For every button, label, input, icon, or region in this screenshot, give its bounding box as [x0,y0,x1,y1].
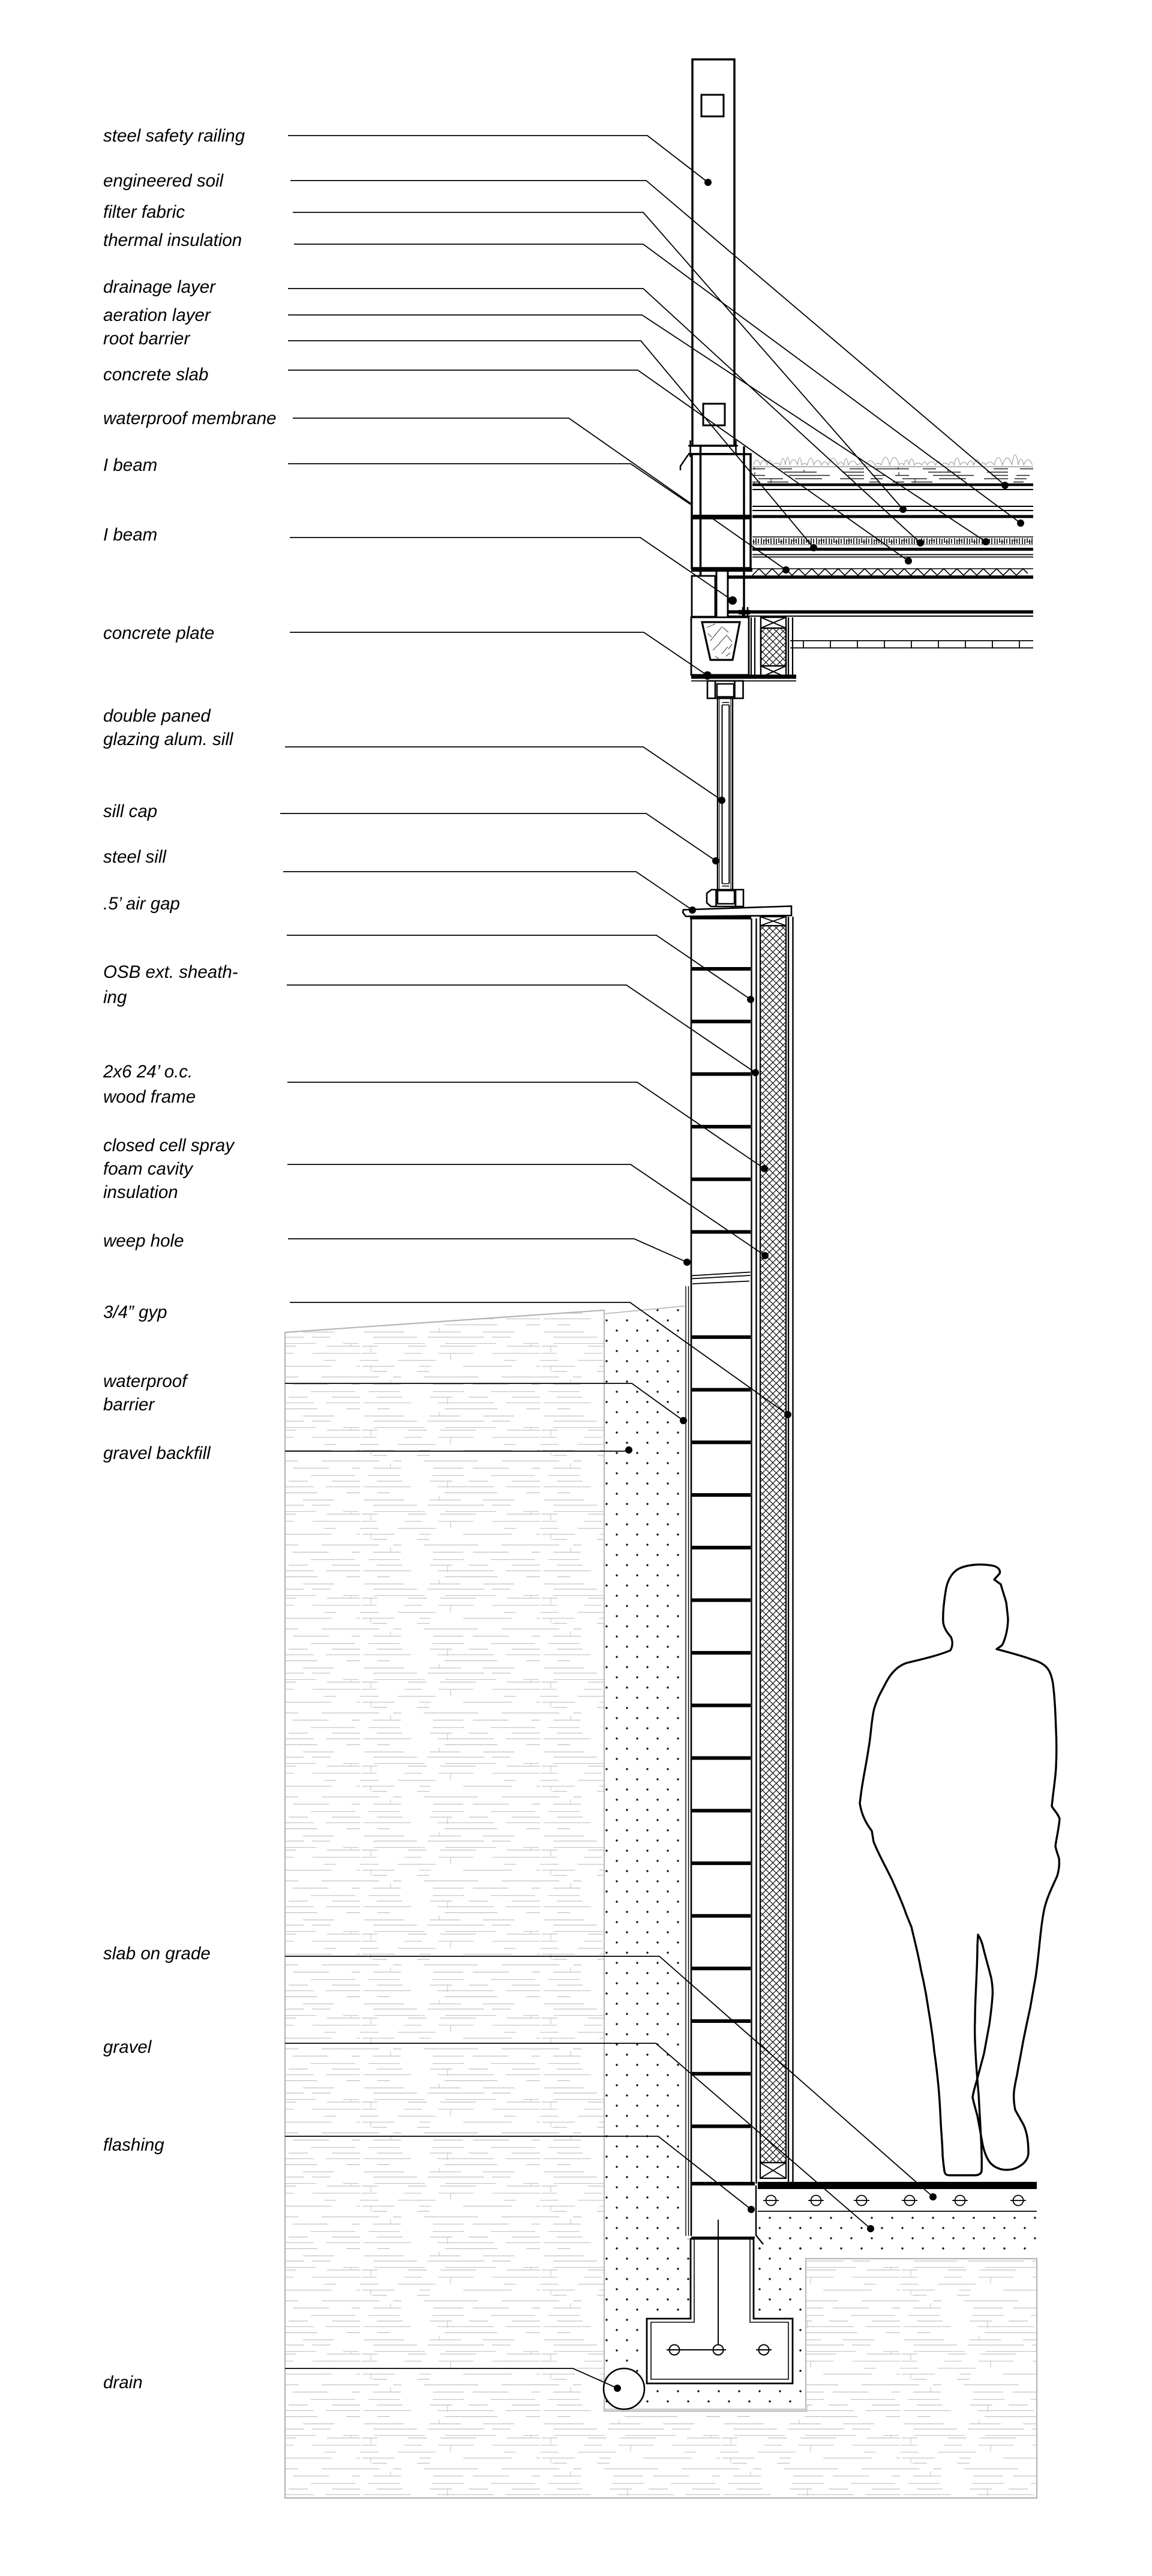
svg-text:thermal insulation: thermal insulation [103,230,242,250]
svg-text:glazing alum. sill: glazing alum. sill [103,729,234,749]
svg-text:drain: drain [103,2373,143,2392]
svg-text:steel sill: steel sill [103,847,167,867]
svg-text:OSB ext. sheath-: OSB ext. sheath- [103,962,238,982]
svg-text:sill cap: sill cap [103,801,157,821]
svg-text:closed cell spray: closed cell spray [103,1136,235,1155]
svg-text:waterproof: waterproof [103,1371,188,1391]
svg-text:aeration layer: aeration layer [103,305,211,325]
svg-text:insulation: insulation [103,1182,178,1202]
svg-text:2x6 24’ o.c.: 2x6 24’ o.c. [103,1062,193,1082]
svg-text:foam cavity: foam cavity [103,1159,194,1179]
svg-text:concrete plate: concrete plate [103,623,214,643]
svg-text:steel safety railing: steel safety railing [103,126,245,146]
svg-text:gravel backfill: gravel backfill [103,1443,211,1463]
svg-text:double paned: double paned [103,706,211,726]
svg-text:barrier: barrier [103,1395,155,1415]
svg-text:flashing: flashing [103,2135,164,2155]
svg-text:waterproof membrane: waterproof membrane [103,409,277,428]
svg-text:I beam: I beam [103,525,157,545]
svg-text:I beam: I beam [103,455,157,475]
svg-text:root barrier: root barrier [103,329,190,349]
svg-text:wood frame: wood frame [103,1087,196,1107]
svg-text:ing: ing [103,987,127,1007]
svg-text:engineered soil: engineered soil [103,171,224,191]
svg-text:drainage layer: drainage layer [103,277,216,297]
svg-text:slab on grade: slab on grade [103,1944,211,1963]
svg-text:weep hole: weep hole [103,1231,184,1251]
svg-text:3/4” gyp: 3/4” gyp [103,1302,167,1322]
svg-text:gravel: gravel [103,2037,152,2057]
svg-text:.5’ air gap: .5’ air gap [103,894,180,914]
svg-text:concrete slab: concrete slab [103,365,208,385]
svg-text:filter fabric: filter fabric [103,202,185,222]
